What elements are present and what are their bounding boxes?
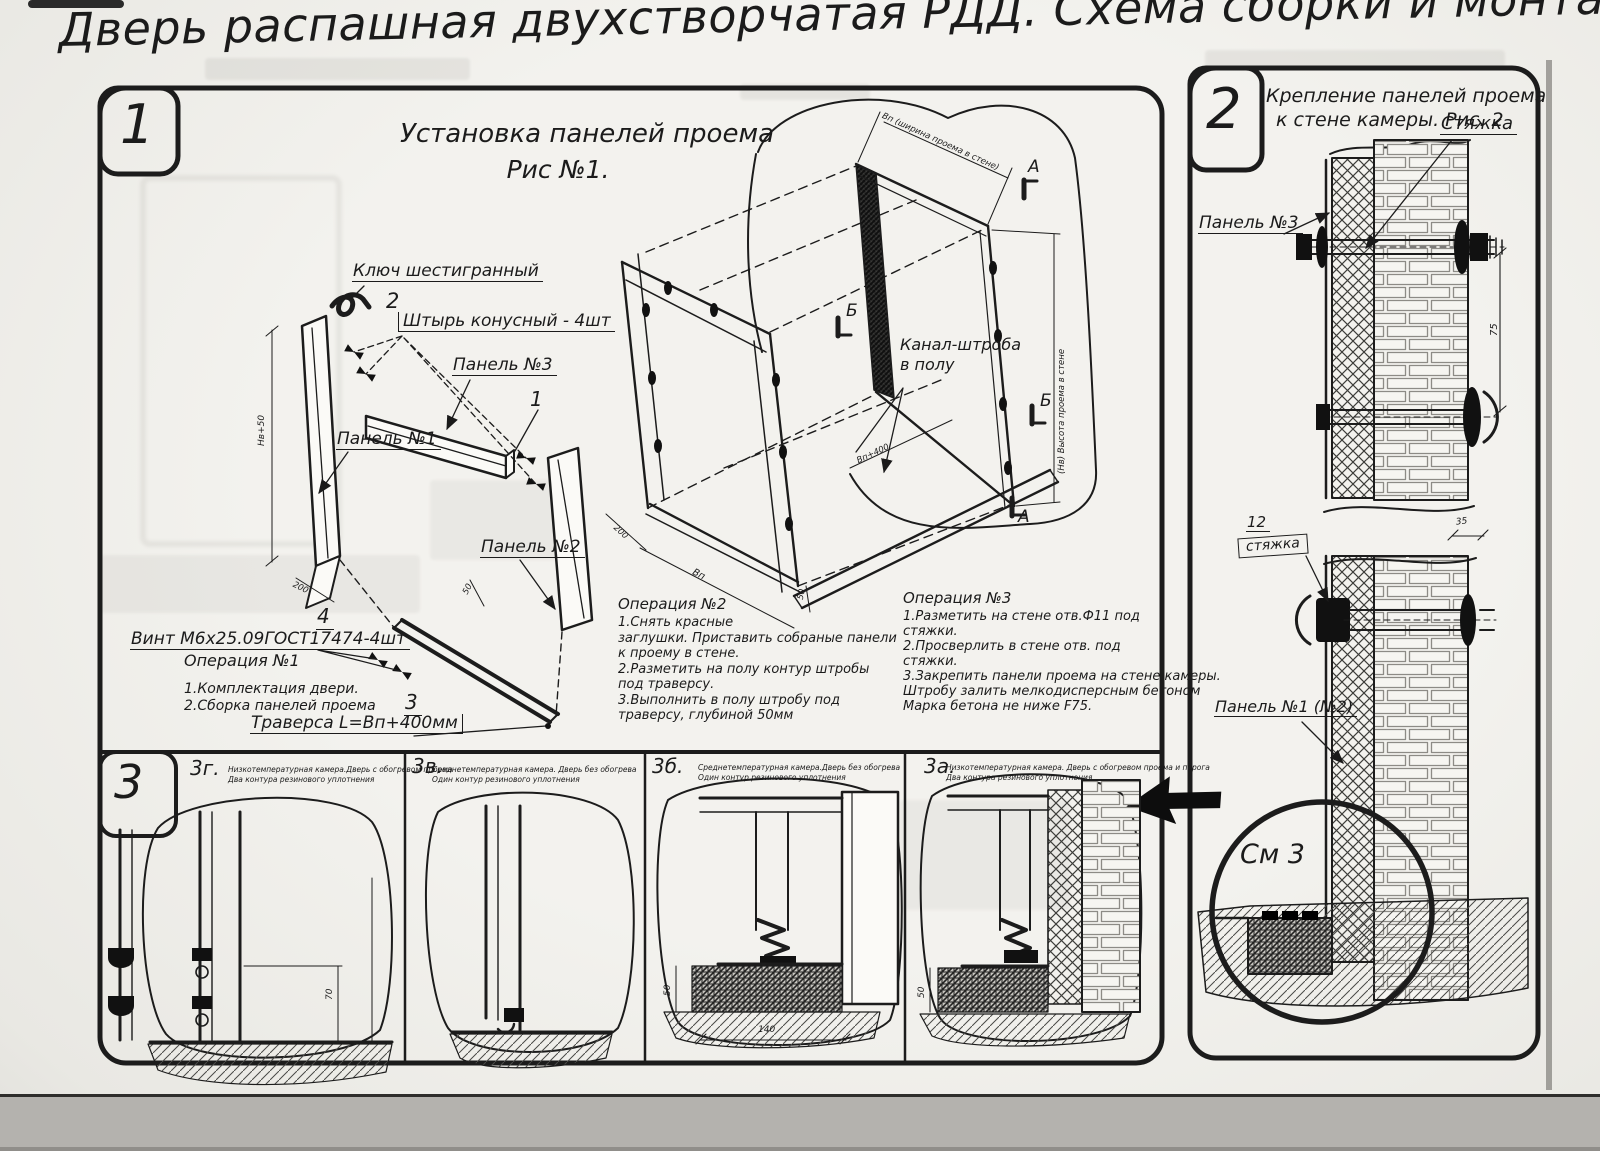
dim-hv50: Hв+50 [258, 415, 268, 446]
op2-title: Операция №2 [618, 596, 726, 612]
fig2-section-view [1123, 140, 1528, 1022]
op2-line: к проему в стене. [618, 647, 739, 661]
sec3-fig-3g [108, 798, 392, 1085]
sec3-fig-id: 3г. [190, 758, 220, 780]
fig1-heading-line1: Установка панелей проема [400, 120, 716, 148]
op3-line: 1.Разметить на стене отв.Ф11 под [903, 610, 1140, 624]
section-marker-b: Б [1040, 392, 1052, 410]
callout-number-1: 1 [530, 389, 543, 411]
sec3-fig-desc: Два контура резинового уплотнения [946, 774, 1092, 782]
label-see-detail-3: См 3 [1240, 840, 1305, 869]
op2-line: 2.Разметить на полу контур штробы [618, 663, 869, 677]
sec3-fig-3a [920, 774, 1141, 1046]
label-pin: Штырь конусный - 4шт [398, 312, 615, 332]
op2-line: 3.Выполнить в полу штробу под [618, 694, 840, 708]
drawing-linework [0, 0, 1600, 1151]
label-panel12: Панель №1 (№2) [1214, 698, 1357, 717]
sec3-fig-desc: Среднетемпературная камера. Дверь без об… [432, 766, 637, 774]
label-traverse: Траверса L=Вп+400мм [250, 714, 463, 734]
op3-line: Штробу залить мелкодисперсным бетоном [903, 685, 1200, 699]
label-tie: Стяжка [1440, 114, 1517, 135]
sec3-fig-desc: Низкотемпературная камера. Дверь с обогр… [946, 764, 1210, 772]
fig1-exploded-view [266, 286, 592, 736]
section-marker-a: А [1028, 158, 1040, 176]
sec3-tab-number: 3 [114, 758, 143, 808]
sec3-details [108, 774, 1141, 1084]
op3-line: стяжки. [903, 625, 958, 639]
op2-line: заглушки. Приставить собраные панели [618, 632, 897, 646]
callout-number-screw: 4 [316, 606, 334, 630]
op3-line: Марка бетона не ниже F75. [903, 700, 1092, 714]
dim-50: 50 [918, 987, 928, 998]
callout-number-12: 12 [1246, 514, 1270, 532]
sec3-fig-desc: Один контур резинового уплотнения [432, 776, 580, 784]
dim-opening-height: (Hв) Высота проема в стене [1058, 349, 1067, 474]
op3-title: Операция №3 [903, 590, 1011, 606]
dim-35: 35 [1456, 517, 1468, 528]
sec3-fig-desc: Один контур резинового уплотнения [698, 774, 846, 782]
op2-line: траверсу, глубиной 50мм [618, 709, 793, 723]
sec3-fig-desc: Два контура резинового уплотнения [228, 776, 374, 784]
op3-line: 3.Закрепить панели проема на стене камер… [903, 670, 1221, 684]
dim-75: 75 [1490, 323, 1501, 336]
op3-line: 2.Просверлить в стене отв. под [903, 640, 1121, 654]
sec3-fig-desc: Среднетемпературная камера.Дверь без обо… [698, 764, 900, 772]
label-screw: Винт М6х25.09ГОСТ17474-4шт [130, 630, 410, 650]
dim-140: 140 [758, 1026, 775, 1036]
fig1-tab-number: 1 [120, 96, 154, 154]
op3-line: стяжки. [903, 655, 958, 669]
drawing-sheet: Дверь распашная двухстворчатая РДД. Схем… [0, 0, 1600, 1151]
label-channel-line1: Канал-штроба [900, 336, 1021, 353]
fig2-heading-line1: Крепление панелей проема [1266, 86, 1546, 107]
label-hex-key: Ключ шестигранный [352, 262, 543, 282]
label-panel1: Панель №1 [336, 430, 441, 450]
section-marker-b: Б [846, 302, 858, 320]
fig1-heading-line2: Рис №1. [400, 156, 716, 183]
label-panel2: Панель №2 [480, 538, 585, 558]
label-panel3-fig2: Панель №3 [1198, 214, 1303, 234]
projection-lines [646, 166, 1012, 586]
sec3-fig-id: 3б. [652, 756, 683, 778]
label-panel3: Панель №3 [452, 356, 557, 376]
dim-70: 70 [326, 989, 336, 1000]
scan-bottom-strip [0, 1094, 1600, 1151]
op2-line: под траверсу. [618, 678, 714, 692]
callout-number-pin: 2 [386, 290, 399, 313]
sec3-fig-3b [657, 779, 901, 1048]
section-marker-a: А [1018, 508, 1030, 526]
op1-title: Операция №1 [184, 652, 300, 669]
op1-line: 2.Сборка панелей проема [184, 699, 376, 714]
op1-line: 1.Комплектация двери. [184, 682, 359, 697]
fig2-tab-number: 2 [1206, 80, 1242, 140]
label-channel-line2: в полу [900, 356, 954, 373]
fig1-leader-lines [318, 286, 555, 736]
sec3-fig-3v [426, 793, 634, 1068]
op2-line: 1.Снять красные [618, 616, 733, 630]
dim-50: 50 [664, 985, 674, 996]
